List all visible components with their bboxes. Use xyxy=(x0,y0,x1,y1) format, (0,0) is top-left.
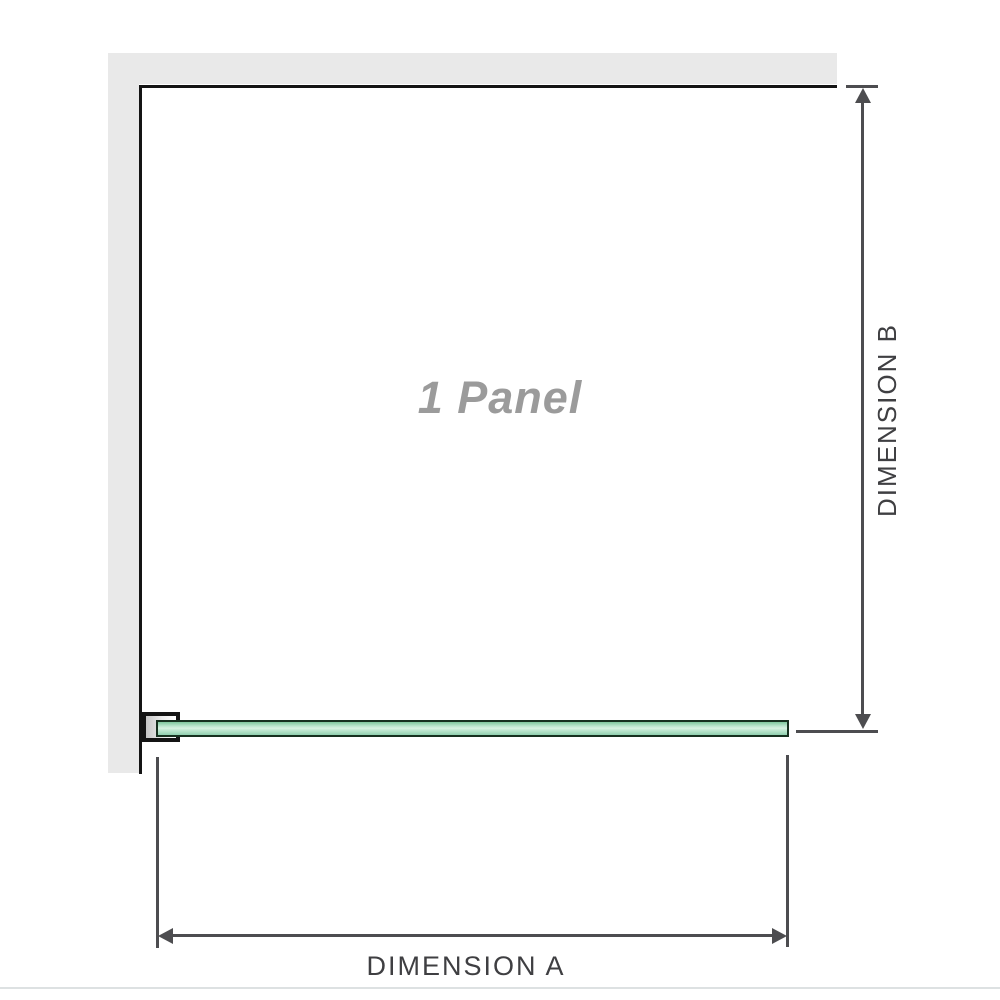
glass-panel xyxy=(156,720,789,737)
panel-left-edge xyxy=(139,85,142,774)
arrow-right-icon xyxy=(772,928,787,944)
panel-top-edge xyxy=(139,85,837,88)
bottom-divider xyxy=(0,987,1000,989)
arrow-down-icon xyxy=(855,714,871,729)
wall-top xyxy=(108,53,837,84)
extension-line-right xyxy=(786,755,789,947)
dimension-b-line xyxy=(861,96,864,718)
dimension-b-tick-bottom xyxy=(796,730,878,733)
dimension-a-label: DIMENSION A xyxy=(266,951,666,982)
dimension-a-line xyxy=(168,934,776,937)
arrow-up-icon xyxy=(855,88,871,103)
arrow-left-icon xyxy=(158,928,173,944)
extension-line-left xyxy=(156,757,159,948)
shower-screen-diagram: 1 Panel DIMENSION B DIMENSION A xyxy=(0,0,1000,1000)
wall-left xyxy=(108,53,139,773)
panel-count-label: 1 Panel xyxy=(300,372,700,424)
dimension-b-label: DIMENSION B xyxy=(874,315,900,525)
